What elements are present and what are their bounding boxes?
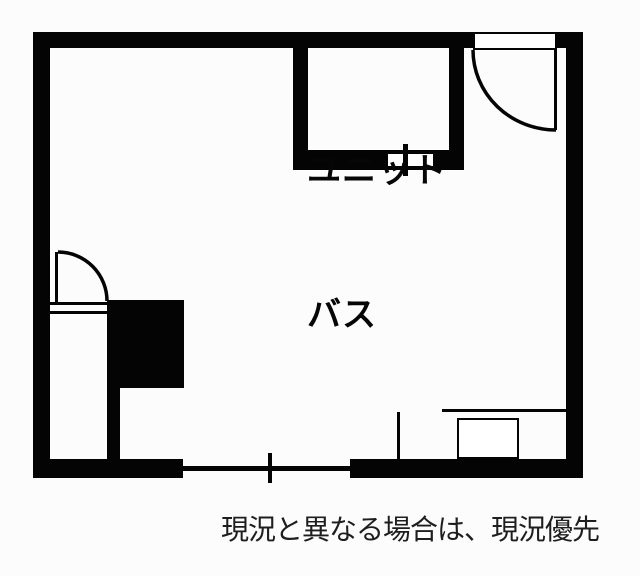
entry-door-leaf-line <box>554 49 557 130</box>
wall-bottom-left-segment <box>33 459 183 478</box>
unit-bath-label-line2: バス <box>307 291 447 339</box>
window-sill-line <box>183 466 350 471</box>
kitchen-counter-line <box>442 409 566 412</box>
wall-bottom-right-segment <box>350 459 583 478</box>
window-mullion-tick <box>268 453 272 483</box>
unit-bath-label-line1: ユニット <box>307 147 447 195</box>
entry-door-swing-arc <box>473 50 556 130</box>
wall-top-left-segment <box>33 32 473 48</box>
wall-left <box>33 32 50 478</box>
left-door-swing-arc <box>58 252 107 301</box>
wall-right <box>566 32 583 478</box>
floor-plan-image: ユニット バス 現況と異なる場合は、現況優先 <box>0 0 640 576</box>
pillar-stem <box>107 388 120 459</box>
entry-door-threshold <box>473 32 557 50</box>
left-door-leaf-line <box>55 252 58 304</box>
disclaimer-text: 現況と異なる場合は、現況優先 <box>221 512 599 548</box>
left-door-step-line-lower <box>50 311 107 314</box>
left-door-step-line-upper <box>50 302 107 305</box>
pillar-block <box>107 300 184 388</box>
kitchen-sink <box>457 418 519 459</box>
unit-bath-label: ユニット バス <box>307 51 447 435</box>
